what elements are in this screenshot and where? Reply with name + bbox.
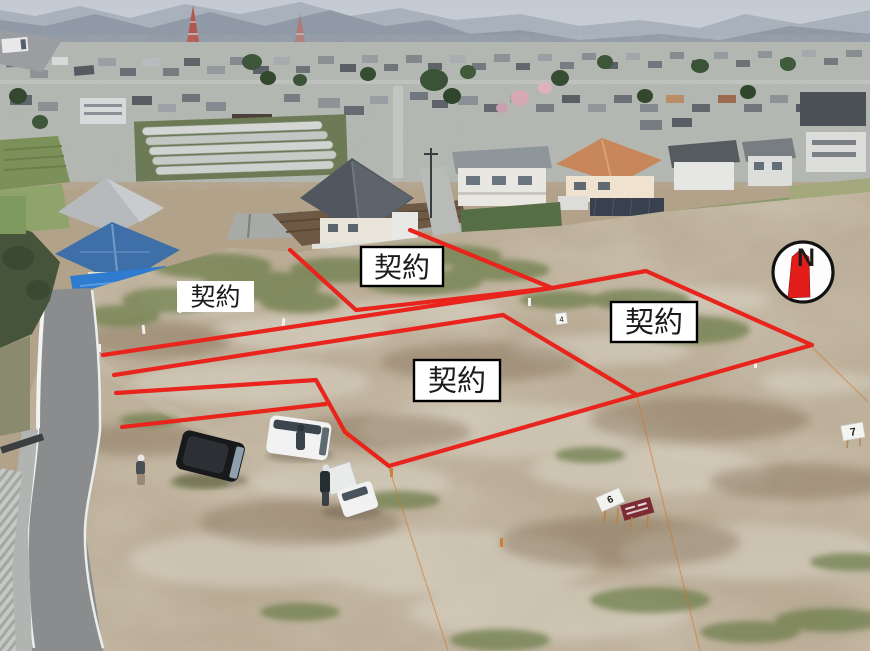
right-houses-pair (668, 138, 796, 190)
contract-label-upper-left-text: 契約 (190, 284, 240, 312)
small-truck (1, 37, 28, 53)
contract-label-upper-middle-text: 契約 (374, 252, 430, 283)
compass-north-letter: N (797, 244, 815, 272)
white-house-right (452, 146, 552, 206)
north-compass: N (773, 242, 833, 302)
contract-label-right: 契約 (611, 302, 697, 342)
contract-label-center: 契約 (414, 360, 500, 401)
contract-label-upper-left: 契約 (177, 281, 254, 312)
contract-label-upper-middle: 契約 (361, 247, 443, 286)
photo-canvas: 4 6 7 (0, 0, 870, 651)
contract-label-right-text: 契約 (625, 306, 683, 339)
aerial-site-photo: 4 6 7 (0, 0, 870, 651)
contract-label-center-text: 契約 (428, 365, 486, 398)
greenhouses (134, 114, 348, 181)
town-band (0, 30, 870, 182)
marker-4-sign: 4 (555, 312, 567, 324)
